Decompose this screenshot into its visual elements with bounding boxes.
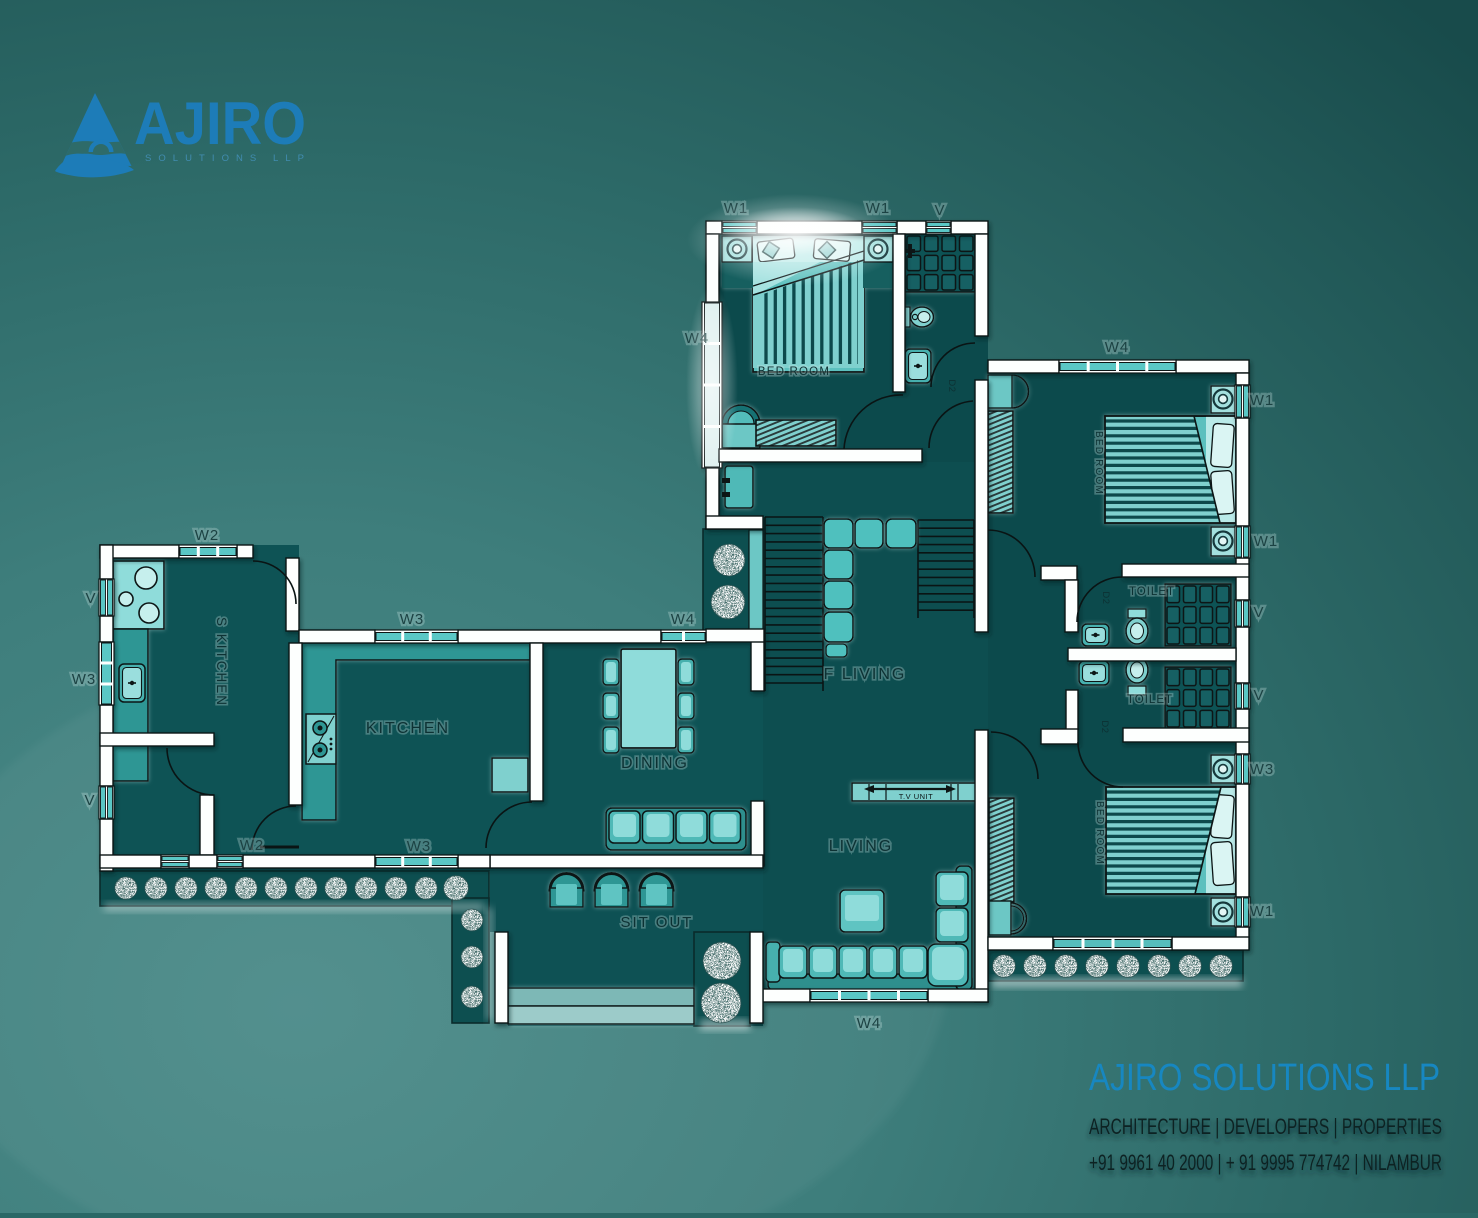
svg-text:W2: W2 bbox=[195, 527, 220, 544]
svg-text:D2: D2 bbox=[1099, 720, 1110, 733]
svg-text:AJIRO SOLUTIONS LLP: AJIRO SOLUTIONS LLP bbox=[1089, 1057, 1440, 1099]
svg-text:BED ROOM: BED ROOM bbox=[1094, 801, 1105, 865]
svg-text:V: V bbox=[934, 202, 945, 219]
svg-text:TOILET: TOILET bbox=[1127, 694, 1173, 706]
svg-text:V: V bbox=[1253, 687, 1264, 704]
svg-text:W1: W1 bbox=[1254, 533, 1279, 550]
svg-text:SIT OUT: SIT OUT bbox=[621, 914, 694, 931]
svg-text:V: V bbox=[85, 590, 96, 607]
svg-text:KITCHEN: KITCHEN bbox=[366, 720, 450, 737]
svg-text:W3: W3 bbox=[72, 671, 97, 688]
svg-text:LIVING: LIVING bbox=[829, 838, 893, 855]
svg-text:W3: W3 bbox=[407, 838, 432, 855]
svg-text:DINING: DINING bbox=[621, 755, 689, 772]
svg-text:F LIVING: F LIVING bbox=[824, 666, 907, 683]
svg-text:ARCHITECTURE | DEVELOPERS | PR: ARCHITECTURE | DEVELOPERS | PROPERTIES bbox=[1089, 1114, 1442, 1139]
svg-text:AJIRO: AJIRO bbox=[134, 90, 306, 157]
svg-text:W4: W4 bbox=[1105, 339, 1130, 356]
svg-text:W3: W3 bbox=[1250, 761, 1275, 778]
svg-text:W3: W3 bbox=[400, 611, 425, 628]
svg-text:BED ROOM: BED ROOM bbox=[758, 366, 830, 378]
svg-text:W2: W2 bbox=[240, 837, 265, 854]
svg-text:TOILET: TOILET bbox=[1129, 586, 1175, 598]
svg-text:T.V UNIT: T.V UNIT bbox=[899, 792, 933, 801]
svg-text:+91 9961 40 2000 | + 91 9995 7: +91 9961 40 2000 | + 91 9995 774742 | NI… bbox=[1089, 1150, 1442, 1175]
svg-text:V: V bbox=[1253, 604, 1264, 621]
svg-text:V: V bbox=[84, 792, 95, 809]
svg-text:W4: W4 bbox=[857, 1015, 882, 1032]
svg-text:D2: D2 bbox=[1100, 591, 1111, 604]
svg-text:BED ROOM: BED ROOM bbox=[1093, 431, 1104, 495]
svg-text:W1: W1 bbox=[1250, 392, 1275, 409]
svg-text:S KITCHEN: S KITCHEN bbox=[214, 617, 229, 707]
svg-text:W4: W4 bbox=[671, 611, 696, 628]
svg-text:D2: D2 bbox=[946, 379, 957, 392]
svg-text:W1: W1 bbox=[1250, 903, 1275, 920]
